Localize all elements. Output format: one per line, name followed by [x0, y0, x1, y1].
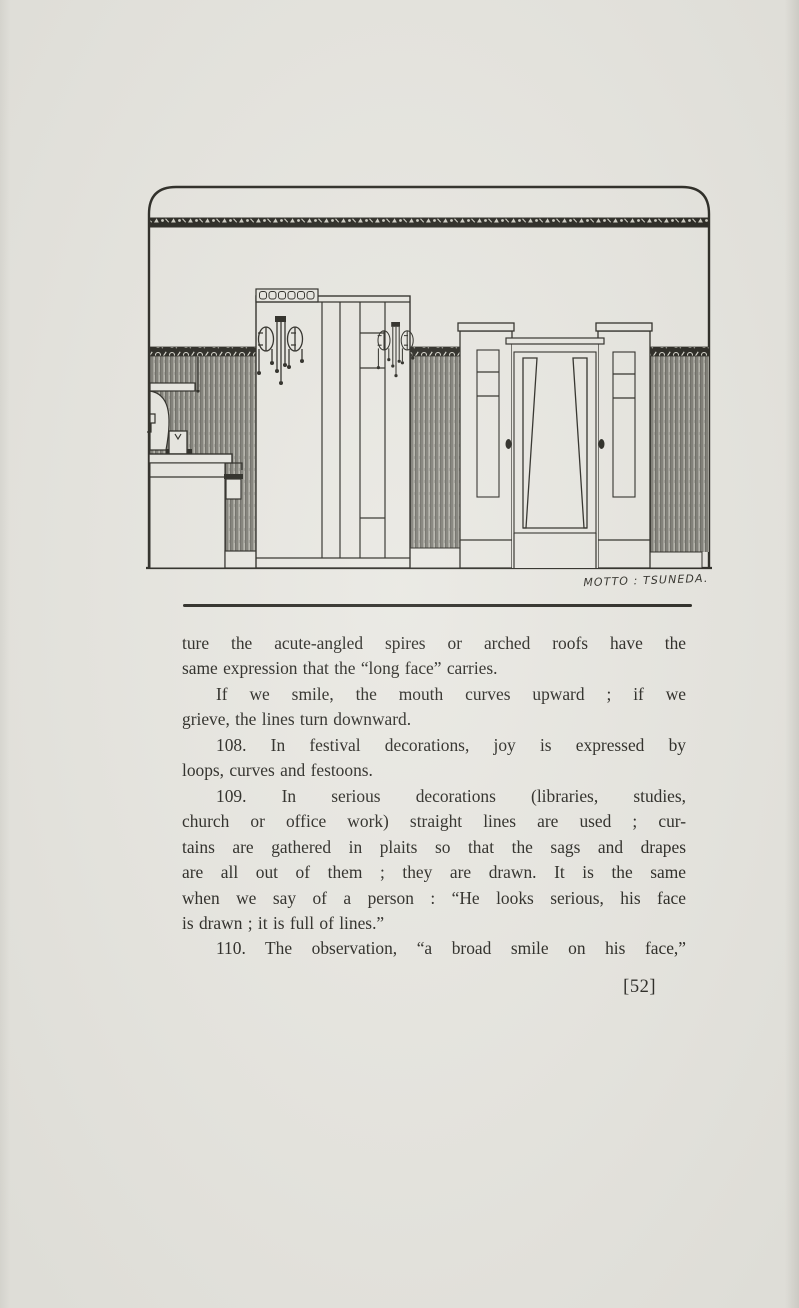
door-knob	[599, 439, 605, 449]
book-page: MOTTO : TSUNEDA. ture the acute-angled s…	[0, 0, 799, 1308]
body-line: church or office work) straight lines ar…	[182, 809, 686, 834]
body-text: ture the acute-angled spires or arched r…	[182, 631, 686, 962]
body-line: same expression that the “long face” car…	[182, 656, 686, 681]
body-line: 109. In serious decorations (libraries, …	[182, 784, 686, 809]
section-divider-rule	[183, 604, 692, 607]
middle-wall-panel	[410, 347, 460, 568]
body-line: grieve, the lines turn downward.	[182, 707, 686, 732]
body-line: loops, curves and festoons.	[182, 758, 686, 783]
body-line: when we say of a person : “He looks seri…	[182, 886, 686, 911]
ceiling-frieze-band	[150, 218, 709, 227]
wardrobe	[458, 323, 652, 568]
door-knob	[506, 439, 512, 449]
body-line: 110. The observation, “a broad smile on …	[182, 936, 686, 961]
cabinet-with-hardware	[256, 289, 414, 568]
right-wall-panel	[650, 347, 709, 568]
body-line: tains are gathered in plaits so that the…	[182, 835, 686, 860]
body-line: 108. In festival decorations, joy is exp…	[182, 733, 686, 758]
body-line: is drawn ; it is full of lines.”	[182, 911, 686, 936]
left-wall-section	[147, 347, 258, 568]
body-line: ture the acute-angled spires or arched r…	[182, 631, 686, 656]
interior-elevation-drawing: MOTTO : TSUNEDA.	[0, 0, 799, 600]
artist-signature: MOTTO : TSUNEDA.	[583, 572, 709, 589]
body-line: are all out of them ; they are drawn. It…	[182, 860, 686, 885]
page-number: [52]	[182, 977, 686, 998]
body-line: If we smile, the mouth curves upward ; i…	[182, 682, 686, 707]
